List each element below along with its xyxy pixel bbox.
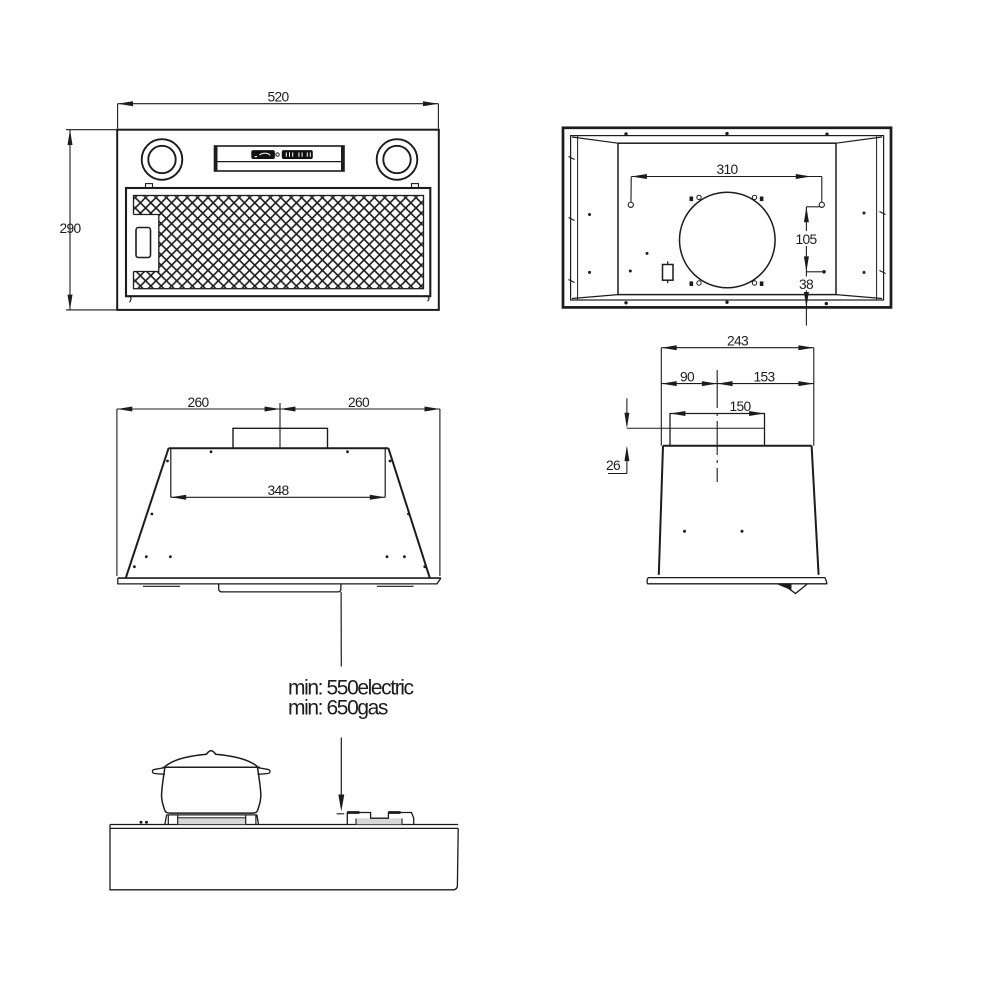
svg-text:150: 150 xyxy=(730,399,752,414)
svg-text:90: 90 xyxy=(680,369,695,384)
svg-text:348: 348 xyxy=(268,483,290,498)
svg-text:38: 38 xyxy=(799,277,814,292)
svg-text:243: 243 xyxy=(727,334,749,349)
svg-text:310: 310 xyxy=(717,162,739,177)
svg-text:260: 260 xyxy=(348,395,370,410)
svg-text:105: 105 xyxy=(796,232,818,247)
svg-text:26: 26 xyxy=(606,458,621,473)
svg-text:290: 290 xyxy=(60,221,82,236)
svg-text:min: 650gas: min: 650gas xyxy=(288,697,388,720)
svg-text:520: 520 xyxy=(268,90,290,105)
svg-text:260: 260 xyxy=(188,395,210,410)
svg-text:153: 153 xyxy=(754,369,776,384)
